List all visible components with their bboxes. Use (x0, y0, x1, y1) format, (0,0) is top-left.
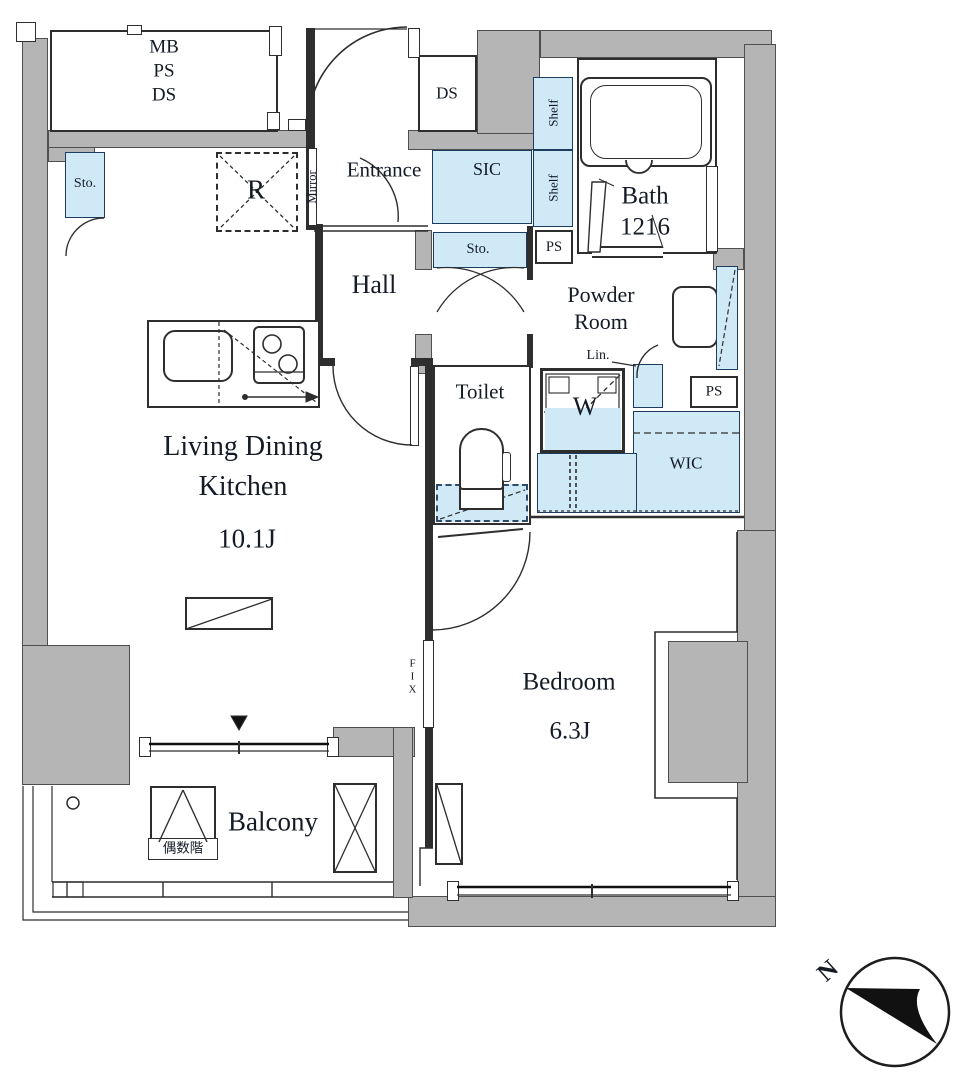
linen-label: Lin. (587, 349, 610, 363)
storage-hall-doors (437, 268, 524, 312)
powder-strip-diagonal (719, 270, 735, 366)
ps-top-label: PS (546, 240, 562, 255)
wic-vertical-dashes (570, 455, 576, 510)
toilet-handle (502, 452, 511, 482)
ldk-label-1: Living Dining (163, 433, 322, 461)
partition-a-frame (159, 790, 207, 842)
tv-board-diagonal (186, 599, 272, 629)
balcony-drain (67, 797, 79, 809)
bedroom-notch-outline (655, 532, 737, 880)
shelf-upper-label: Shelf (547, 99, 560, 126)
kitchen-arrow-dot (243, 395, 248, 400)
powder-label-1: Powder (567, 284, 634, 306)
shelf-lower-label: Shelf (547, 174, 560, 201)
bathtub-notch (626, 160, 652, 173)
balcony-label: Balcony (228, 809, 318, 836)
mirror-label: Mirror (306, 170, 319, 203)
entrance-door-arc (308, 27, 407, 125)
bedroom-door-arc (432, 532, 530, 630)
bedroom-alcove (420, 848, 433, 886)
ldk-window-marker (231, 716, 247, 730)
toilet-bowl (459, 428, 504, 490)
toilet-door-line (438, 529, 523, 537)
hall-label: Hall (352, 272, 397, 298)
floor-plan: MB PS DS Sto. R Mirror Entrance DS SIC S… (0, 0, 960, 1086)
balcony-outline-inner (33, 786, 408, 912)
wic-label: WIC (669, 455, 702, 472)
balcony-outline-outer (23, 786, 408, 920)
balcony-railing-ticks (163, 882, 272, 897)
shutter-diagonal (437, 785, 461, 863)
linen-leader (612, 362, 636, 366)
storage-left-door-arc (66, 218, 104, 256)
kitchen-dash-diag (224, 330, 316, 402)
bath-size-label: 1216 (620, 215, 670, 240)
storage-hall-label: Sto. (467, 242, 490, 257)
bath-bench (588, 182, 606, 252)
balcony-unit-cross (335, 785, 375, 871)
ps-right-label: PS (706, 385, 723, 400)
even-floors-label: 偶数階 (163, 842, 204, 856)
ps-label-meterbox: PS (153, 62, 174, 81)
ldk-size-label: 10.1J (218, 526, 276, 553)
stove-burner-1 (263, 335, 281, 353)
ldk-label-2: Kitchen (199, 473, 288, 501)
kitchen-arrow-head (306, 392, 318, 402)
stove-burner-2 (279, 355, 297, 373)
sic-label: SIC (473, 160, 501, 178)
bath-label: Bath (621, 184, 668, 209)
washer-label: W (573, 394, 598, 420)
powder-door-arc (637, 345, 658, 378)
balcony-railing (52, 882, 393, 897)
mb-label: MB (149, 38, 179, 57)
fix-label: FIX (407, 658, 418, 697)
storage-left-label: Sto. (74, 177, 96, 191)
bedroom-size-label: 6.3J (550, 719, 591, 744)
ldk-door-arc (333, 366, 412, 445)
entrance-label: Entrance (347, 160, 422, 181)
balcony-step-2 (67, 882, 83, 897)
refrigerator-label: R (247, 177, 265, 204)
entrance-step-lines (314, 226, 428, 231)
toilet-label: Toilet (456, 382, 505, 403)
ds-label-meterbox: DS (152, 86, 176, 105)
powder-label-2: Room (574, 311, 628, 333)
bedroom-label: Bedroom (522, 670, 615, 695)
compass (841, 958, 949, 1066)
ds-box-label: DS (436, 85, 458, 102)
balcony-step-1 (53, 882, 67, 897)
